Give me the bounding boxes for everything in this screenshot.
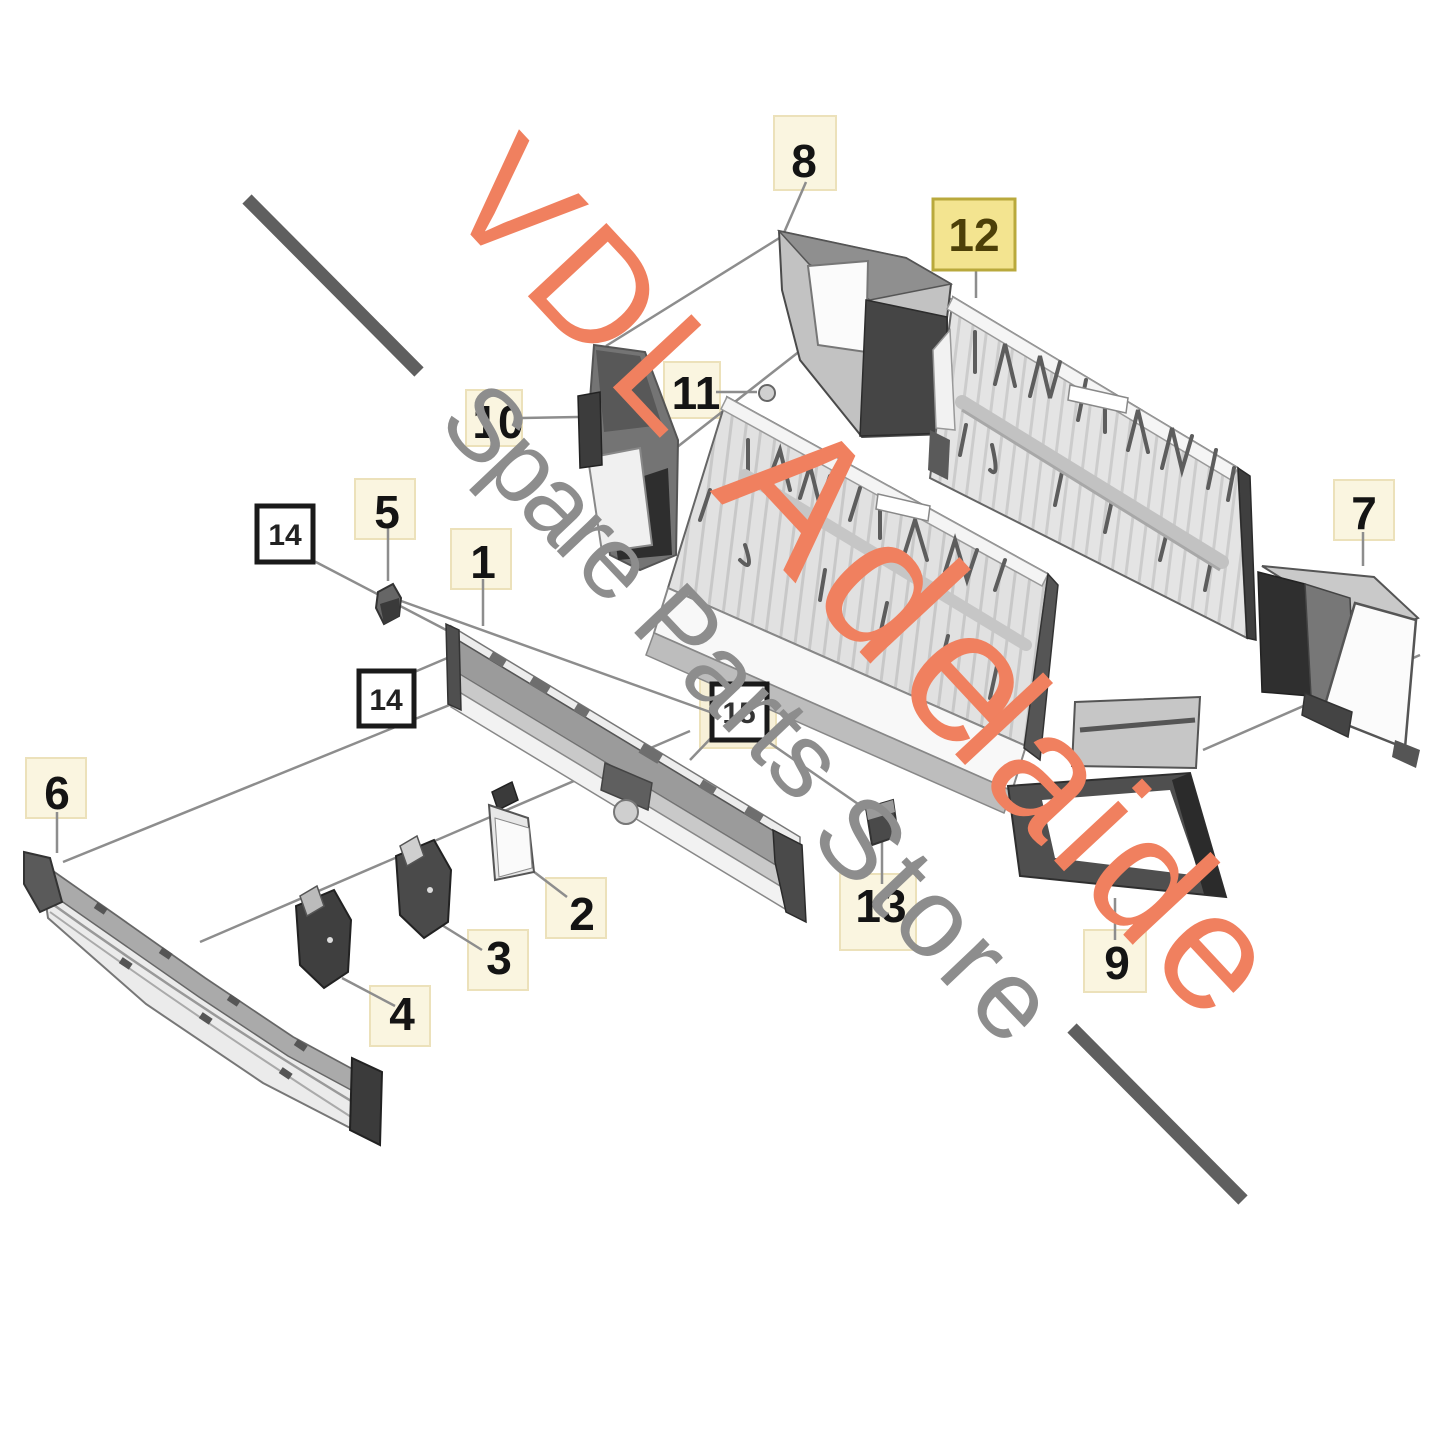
svg-text:3: 3 [486,932,512,984]
svg-text:6: 6 [44,767,70,819]
svg-text:1: 1 [470,536,496,588]
svg-text:5: 5 [374,486,400,538]
svg-text:7: 7 [1351,487,1377,539]
svg-text:14: 14 [369,684,403,717]
svg-text:14: 14 [268,519,302,552]
svg-text:8: 8 [791,135,817,187]
svg-text:12: 12 [948,209,999,261]
svg-text:2: 2 [569,888,595,940]
svg-text:4: 4 [389,988,415,1040]
